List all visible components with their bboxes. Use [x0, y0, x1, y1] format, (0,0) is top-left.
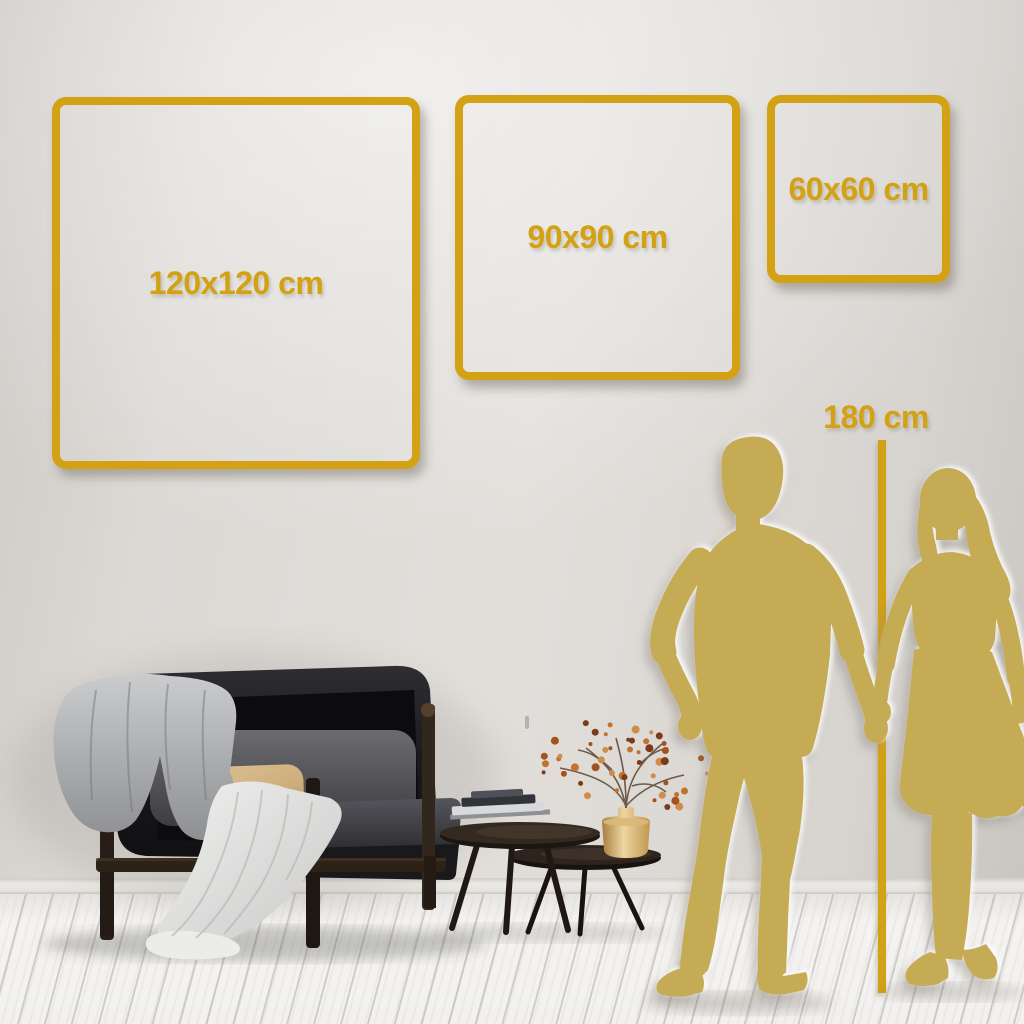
woman-silhouette: [871, 468, 1024, 986]
couple-silhouettes: [0, 0, 1024, 1024]
man-silhouette: [656, 437, 888, 997]
size-guide-scene: 120x120 cm 90x90 cm 60x60 cm 180 cm: [0, 0, 1024, 1024]
